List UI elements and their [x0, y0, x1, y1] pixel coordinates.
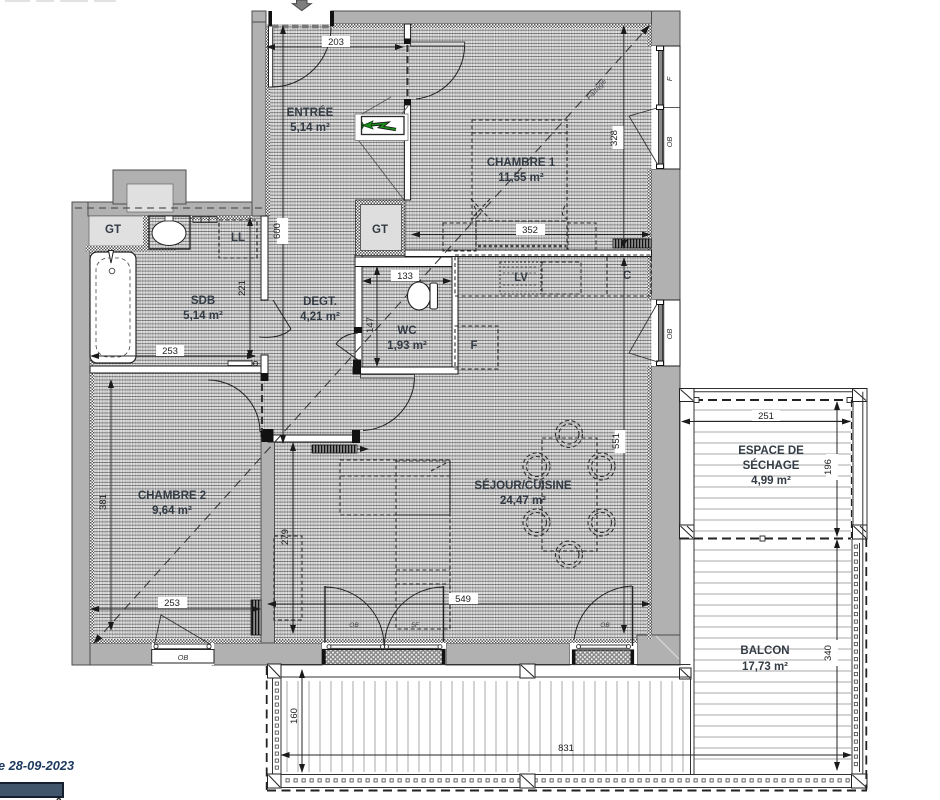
- svg-text:OB: OB: [665, 137, 674, 148]
- svg-text:OB: OB: [665, 329, 674, 340]
- svg-text:340: 340: [823, 645, 834, 661]
- svg-text:549: 549: [455, 594, 471, 605]
- svg-text:CHAMBRE 1: CHAMBRE 1: [487, 157, 556, 169]
- svg-text:160: 160: [289, 708, 300, 724]
- svg-text:CHAMBRE 2: CHAMBRE 2: [138, 490, 206, 502]
- svg-text:196: 196: [823, 459, 834, 475]
- svg-text:DEGT.: DEGT.: [303, 296, 337, 308]
- svg-text:551: 551: [611, 433, 622, 449]
- svg-text:F: F: [665, 76, 674, 81]
- svg-text:OB: OB: [349, 622, 359, 629]
- svg-text:381: 381: [98, 494, 109, 510]
- svg-text:ESPACE DE: ESPACE DE: [738, 445, 804, 457]
- svg-text:SDB: SDB: [191, 295, 215, 307]
- svg-text:GT: GT: [372, 224, 388, 236]
- svg-text:SÉCHAGE: SÉCHAGE: [743, 459, 800, 472]
- svg-text:F: F: [470, 340, 477, 352]
- svg-text:9,64 m²: 9,64 m²: [152, 505, 192, 517]
- svg-text:253: 253: [164, 598, 180, 609]
- svg-text:WC: WC: [397, 325, 416, 337]
- svg-text:203: 203: [328, 37, 344, 48]
- svg-text:24,47 m²: 24,47 m²: [500, 495, 546, 507]
- svg-text:4,99 m²: 4,99 m²: [751, 475, 791, 487]
- svg-text:5F: 5F: [411, 622, 420, 629]
- svg-text:831: 831: [558, 743, 574, 754]
- svg-text:e 28-09-2023: e 28-09-2023: [0, 758, 74, 773]
- svg-text:5,14 m²: 5,14 m²: [290, 122, 330, 134]
- svg-text:133: 133: [397, 271, 413, 282]
- svg-text:279: 279: [280, 529, 291, 545]
- svg-text:328: 328: [609, 130, 620, 146]
- svg-text:SÉJOUR/CUISINE: SÉJOUR/CUISINE: [474, 479, 571, 492]
- svg-text:600: 600: [272, 223, 283, 239]
- svg-text:BALCON: BALCON: [740, 645, 789, 657]
- svg-text:LV: LV: [514, 272, 528, 284]
- svg-text:17,73 m²: 17,73 m²: [742, 661, 788, 673]
- svg-text:147: 147: [365, 317, 376, 333]
- svg-text:1,93 m²: 1,93 m²: [387, 340, 427, 352]
- svg-text:OB: OB: [178, 653, 189, 662]
- svg-text:OB: OB: [600, 622, 610, 629]
- svg-text:ENTRÉE: ENTRÉE: [287, 106, 334, 119]
- svg-text:253: 253: [162, 346, 178, 357]
- svg-text:5,14 m²: 5,14 m²: [183, 310, 223, 322]
- svg-text:11,55 m²: 11,55 m²: [498, 172, 544, 184]
- svg-text:251: 251: [758, 411, 774, 422]
- svg-text:4,21 m²: 4,21 m²: [300, 311, 340, 323]
- svg-text:352: 352: [522, 225, 538, 236]
- svg-text:LL: LL: [231, 232, 245, 244]
- svg-text:221: 221: [237, 280, 248, 296]
- svg-text:GT: GT: [105, 224, 121, 236]
